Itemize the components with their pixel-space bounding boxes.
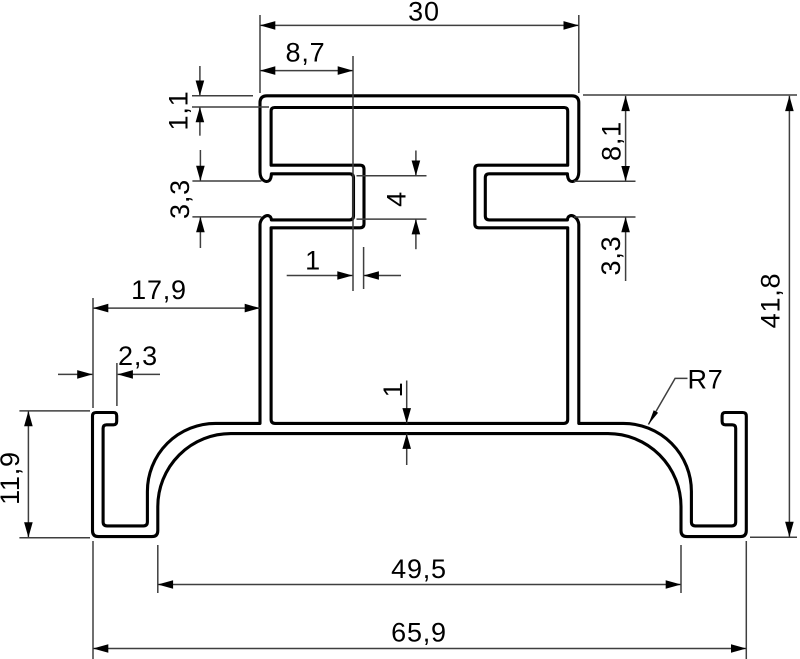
- svg-text:R7: R7: [688, 365, 724, 395]
- svg-text:8,1: 8,1: [596, 121, 626, 161]
- svg-text:49,5: 49,5: [391, 554, 447, 584]
- svg-text:4: 4: [382, 191, 412, 207]
- svg-text:11,9: 11,9: [0, 451, 25, 505]
- svg-text:1: 1: [305, 246, 321, 276]
- svg-text:2,3: 2,3: [118, 341, 158, 371]
- svg-text:3,3: 3,3: [165, 179, 195, 219]
- svg-text:3,3: 3,3: [596, 236, 626, 276]
- svg-text:41,8: 41,8: [756, 273, 786, 329]
- svg-text:65,9: 65,9: [391, 618, 447, 648]
- svg-text:1,1: 1,1: [163, 91, 193, 131]
- svg-text:17,9: 17,9: [131, 275, 187, 305]
- svg-text:1: 1: [378, 382, 408, 398]
- svg-text:30: 30: [408, 0, 440, 27]
- svg-text:8,7: 8,7: [286, 38, 326, 68]
